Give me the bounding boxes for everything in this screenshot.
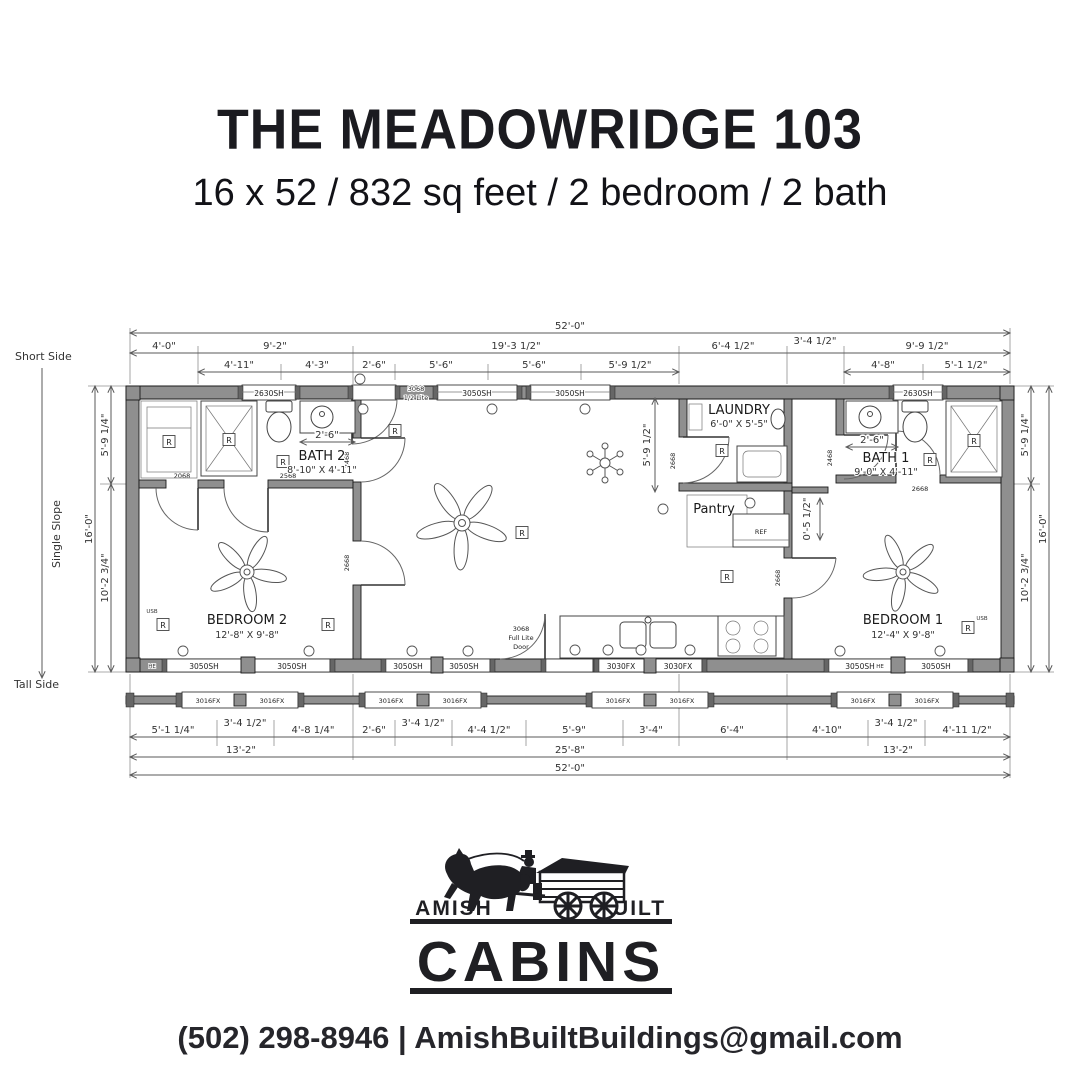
dim-label: 4'-10" — [812, 725, 842, 736]
dim-label: 9'-2" — [263, 341, 287, 352]
ceiling-fan — [208, 534, 287, 613]
room-size: 8'-10" X 4'-11" — [287, 465, 357, 476]
light-symbols — [178, 374, 945, 656]
dim-label: 5'-9" — [562, 725, 586, 736]
dim-label: 4'-4 1/2" — [468, 725, 511, 736]
dim-label: 5'-6" — [429, 360, 453, 371]
horse-buggy-icon — [444, 848, 629, 919]
room-name: BEDROOM 1 — [863, 613, 943, 628]
dim-label: 10'-2 3/4" — [100, 553, 111, 602]
door-code: 3068 — [408, 385, 425, 393]
logo-rule-top — [410, 919, 672, 924]
window-code: 3050SH — [277, 662, 307, 671]
dim-label: 25'-8" — [555, 745, 585, 756]
svg-text:R: R — [965, 624, 971, 633]
toilet — [266, 401, 292, 412]
dim-label: 2'-6" — [362, 725, 386, 736]
dim-label: 5'-6" — [522, 360, 546, 371]
dim-label: 9'-9 1/2" — [906, 341, 949, 352]
window-code: 3016FX — [851, 697, 876, 705]
laundry-sink — [771, 409, 785, 429]
window-code: 3050SH — [921, 662, 951, 671]
door-code: 2468 — [826, 450, 834, 467]
light — [658, 504, 668, 514]
dim-label: 16'-0" — [1038, 514, 1049, 544]
door-code: 2668 — [669, 453, 677, 470]
receptacle-icon: R — [968, 435, 980, 447]
right-side: 5'-9 1/4" 10'-2 3/4" 16'-0" — [1020, 386, 1049, 672]
he-label: HE — [876, 664, 884, 670]
dim-label: 6'-4 1/2" — [712, 341, 755, 352]
receptacle-icon: R — [163, 436, 175, 448]
dim-label: 13'-2" — [883, 745, 913, 756]
dim-label: 52'-0" — [555, 763, 585, 774]
window-code: 3016FX — [915, 697, 940, 705]
light — [463, 646, 473, 656]
room-size: 12'-8" X 9'-8" — [215, 630, 279, 641]
svg-text:R: R — [226, 436, 232, 445]
light — [685, 645, 695, 655]
light — [570, 645, 580, 655]
skirt-band: 3016FX 3016FX 3016FX 3016FX 3016FX 3016F… — [126, 692, 1014, 708]
svg-text:R: R — [280, 458, 286, 467]
ceiling-fan — [863, 533, 941, 612]
dim-label: 10'-2 3/4" — [1020, 553, 1031, 602]
left-side: Short Side Single Slope Tall Side 16'-0"… — [13, 350, 111, 691]
dim-label: 0'-5 1/2" — [802, 498, 813, 541]
sink-basin — [650, 622, 676, 648]
dim-label: 4'-11 1/2" — [942, 725, 991, 736]
dim-label: 6'-4" — [720, 725, 744, 736]
door-code: Full Lite — [508, 634, 533, 642]
room-size: 9'-0" X 4'-11" — [854, 467, 918, 478]
receptacle-icon: R — [716, 445, 728, 457]
flyer-page: THE MEADOWRIDGE 103 16 x 52 / 832 sq fee… — [0, 0, 1080, 1080]
window-code: 2630SH — [903, 389, 933, 398]
dim-label: 3'-4" — [639, 725, 663, 736]
light — [636, 645, 646, 655]
dim-label: 2'-6" — [315, 430, 339, 441]
door-code: 2668 — [912, 485, 929, 493]
door-code: 3068 — [513, 625, 530, 633]
light — [935, 646, 945, 656]
dim-label: 4'-8" — [871, 360, 895, 371]
dim-label: 13'-2" — [226, 745, 256, 756]
floor-plan: 3016FX 3016FX 3016FX 3016FX 3016FX 3016F… — [0, 300, 1080, 800]
short-side-label: Short Side — [15, 350, 72, 363]
phone-number: (502) 298-8946 — [177, 1020, 389, 1055]
separator: | — [398, 1020, 407, 1055]
kitchen-counter — [560, 616, 784, 658]
light — [355, 374, 365, 384]
window-code: 3016FX — [196, 697, 221, 705]
light — [603, 645, 613, 655]
room-name: BEDROOM 2 — [207, 613, 287, 628]
toilet — [902, 401, 928, 412]
window-code: 3050SH — [449, 662, 479, 671]
room-name: Pantry — [693, 502, 735, 517]
usb-label: USB — [976, 616, 988, 622]
door-code: 2668 — [343, 555, 351, 572]
sink-basin — [620, 622, 646, 648]
receptacle-icon: R — [157, 619, 169, 631]
chandelier — [587, 443, 623, 483]
svg-text:R: R — [724, 573, 730, 582]
dim-label: 19'-3 1/2" — [491, 341, 540, 352]
dim-label: 3'-4 1/2" — [402, 718, 445, 729]
window-code: 3016FX — [670, 697, 695, 705]
dim-label: 4'-11" — [224, 360, 254, 371]
svg-text:R: R — [325, 621, 331, 630]
window-code: 3016FX — [260, 697, 285, 705]
faucet — [645, 617, 651, 623]
logo-cabins: CABINS — [417, 930, 666, 994]
fridge-label: REF — [755, 528, 768, 536]
top-dimensions: 52'-0" 4'-0" 9'-2" 19'-3 1/2" 6'-4 1/2" … — [130, 321, 1010, 372]
receptacle-icon: R — [516, 527, 528, 539]
dim-label: 4'-8 1/4" — [292, 725, 335, 736]
single-slope-label: Single Slope — [50, 500, 63, 568]
receptacle-icon: R — [721, 571, 733, 583]
usb-label: USB — [146, 609, 158, 615]
dim-label: 5'-9 1/4" — [1020, 414, 1031, 457]
light — [178, 646, 188, 656]
page-subtitle: 16 x 52 / 832 sq feet / 2 bedroom / 2 ba… — [0, 172, 1080, 215]
light — [580, 404, 590, 414]
ceiling-fan — [415, 480, 509, 570]
svg-text:R: R — [519, 529, 525, 538]
window-code: 3050SH — [189, 662, 219, 671]
dim-label: 3'-4 1/2" — [875, 718, 918, 729]
cabinet — [689, 404, 702, 430]
svg-text:R: R — [971, 437, 977, 446]
logo-rule-bottom — [410, 988, 672, 994]
svg-text:R: R — [719, 447, 725, 456]
bottom-dimensions: 5'-1 1/4" 3'-4 1/2" 4'-8 1/4" 2'-6" 3'-4… — [130, 718, 1010, 775]
door-code: 2068 — [174, 472, 191, 480]
light — [407, 646, 417, 656]
svg-text:R: R — [160, 621, 166, 630]
dim-label: 2'-6" — [860, 435, 884, 446]
tall-side-label: Tall Side — [13, 678, 59, 691]
logo-amish: AMISH — [415, 897, 493, 920]
page-title: THE MEADOWRIDGE 103 — [0, 98, 1080, 163]
dim-label: 4'-3" — [305, 360, 329, 371]
door-code: 1/2 Lite — [404, 394, 429, 402]
contact-line: (502) 298-8946 | AmishBuiltBuildings@gma… — [0, 1020, 1080, 1056]
washer — [737, 446, 787, 482]
email-address[interactable]: AmishBuiltBuildings@gmail.com — [414, 1020, 902, 1055]
room-name: LAUNDRY — [708, 403, 770, 418]
room-name: BATH 2 — [299, 449, 346, 464]
dim-label: 5'-9 1/2" — [609, 360, 652, 371]
dim-label: 16'-0" — [84, 514, 95, 544]
dim-label: 5'-9 1/2" — [642, 424, 653, 467]
window-code: 3016FX — [443, 697, 468, 705]
window-code: 3050SH — [555, 389, 585, 398]
logo-svg: AMISH BUILT — [0, 845, 1080, 1015]
light — [745, 498, 755, 508]
light — [487, 404, 497, 414]
dim-label: 4'-0" — [152, 341, 176, 352]
receptacle-icon: R — [389, 425, 401, 437]
dim-label: 5'-9 1/4" — [100, 414, 111, 457]
receptacle-icon: R — [223, 434, 235, 446]
room-name: BATH 1 — [863, 451, 910, 466]
light — [304, 646, 314, 656]
window-code: 3050SH — [462, 389, 492, 398]
dim-label: 5'-1 1/2" — [945, 360, 988, 371]
light — [835, 646, 845, 656]
dim-label: 5'-1 1/4" — [152, 725, 195, 736]
svg-text:R: R — [927, 456, 933, 465]
dim-label: 3'-4 1/2" — [794, 336, 837, 347]
window-code: 3016FX — [379, 697, 404, 705]
window-code: 3030FX — [607, 662, 636, 671]
receptacle-icon: R — [322, 619, 334, 631]
window-code: 3050SH — [845, 662, 875, 671]
window-code: 3050SH — [393, 662, 423, 671]
he-label: HE — [148, 664, 156, 670]
floor-plan-svg: 3016FX 3016FX 3016FX 3016FX 3016FX 3016F… — [0, 300, 1080, 800]
room-size: 6'-0" X 5'-5" — [710, 419, 768, 430]
dim-label: 2'-6" — [362, 360, 386, 371]
svg-text:R: R — [166, 438, 172, 447]
svg-text:R: R — [392, 427, 398, 436]
light — [358, 404, 368, 414]
window-code: 3030FX — [664, 662, 693, 671]
window-code: 2630SH — [254, 389, 284, 398]
stove — [718, 616, 776, 656]
receptacle-icon: R — [924, 454, 936, 466]
door-code: 2668 — [774, 570, 782, 587]
room-size: 12'-4" X 9'-8" — [871, 630, 935, 641]
window-code: 3016FX — [606, 697, 631, 705]
brand-logo: AMISH BUILT — [0, 845, 1080, 1015]
dim-label: 52'-0" — [555, 321, 585, 332]
receptacle-icon: R — [962, 622, 974, 634]
dim-label: 3'-4 1/2" — [224, 718, 267, 729]
